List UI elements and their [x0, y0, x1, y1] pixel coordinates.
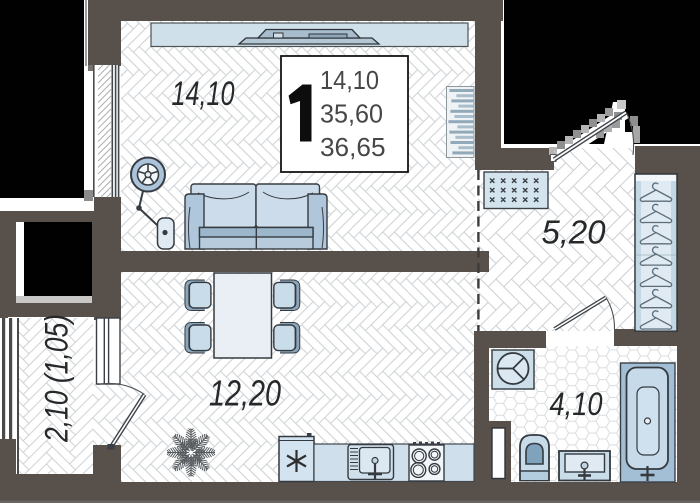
svg-text:2,10 (1,05): 2,10 (1,05)	[39, 314, 75, 443]
svg-text:12,20: 12,20	[209, 373, 281, 414]
svg-text:36,65: 36,65	[320, 134, 386, 162]
svg-text:14,10: 14,10	[172, 75, 235, 113]
svg-text:35,60: 35,60	[320, 101, 383, 129]
svg-text:14,10: 14,10	[320, 67, 379, 95]
svg-text:5,20: 5,20	[542, 214, 607, 251]
svg-text:4,10: 4,10	[550, 386, 603, 422]
